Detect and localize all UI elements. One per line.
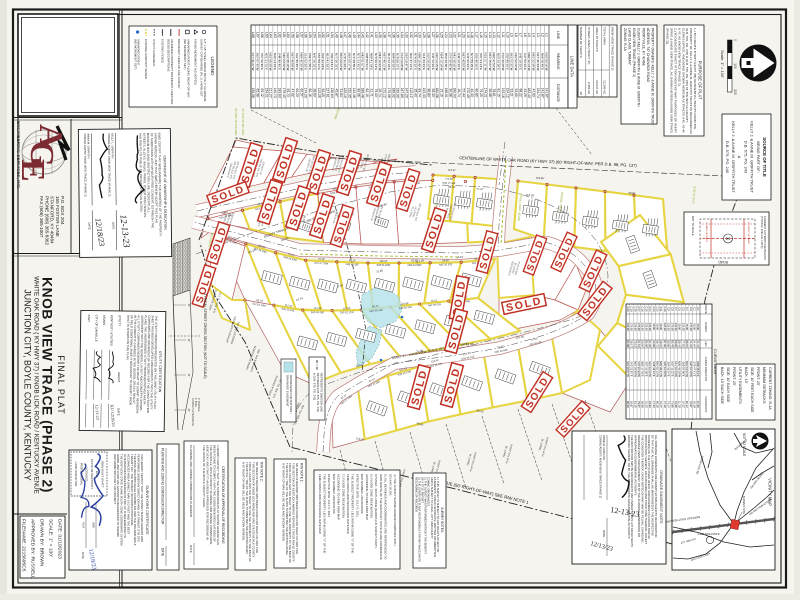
svg-text:N54°13’18”W: N54°13’18”W [440,52,444,70]
svg-text:S51°58’31”E: S51°58’31”E [317,53,321,70]
svg-text:L33: L33 [404,32,408,38]
svg-text:152.35’: 152.35’ [348,88,352,99]
svg-text:SIDE: 10' FEET EACH SIDE: SIDE: 10' FEET EACH SIDE [750,367,754,413]
svg-text:N67°45’13”W: N67°45’13”W [383,52,387,70]
svg-text:MAP NUMBER: 21021C0170C: MAP NUMBER: 21021C0170C [332,474,336,514]
svg-text:60.57’: 60.57’ [299,89,303,98]
svg-text:L38: L38 [383,32,387,38]
svg-text:93.21’: 93.21’ [510,89,514,98]
svg-text:L35: L35 [396,32,400,38]
svg-text:175.56’: 175.56’ [387,88,391,99]
svg-text:CLIENT: KELLY J. GRIFFITH & A: CLIENT: KELLY J. GRIFFITH & ANNE M. GRIF… [637,28,641,107]
svg-text:1.) TO CREATE THIRTY EIGHT (38: 1.) TO CREATE THIRTY EIGHT (38) RESIDENT… [693,28,697,129]
svg-text:THE CONDITION THEREOF, OR AS N: THE CONDITION THEREOF, OR AS NOTED ON AN… [640,435,644,543]
svg-text:PLANNING AND ZONING COMMISSION: PLANNING AND ZONING COMMISSION CHAIRMAN [189,445,193,517]
svg-text:S69°59’17”W: S69°59’17”W [348,53,352,71]
svg-text:L7: L7 [518,33,522,37]
svg-text:183.60’: 183.60’ [277,88,281,99]
svg-text:DATE: DATE [116,408,120,416]
svg-text:N67°49’58”W: N67°49’58”W [291,52,295,70]
svg-text:35.43’: 35.43’ [413,89,417,98]
svg-text:L59: L59 [291,32,295,38]
svg-text:N67°42’44”W: N67°42’44”W [536,52,540,70]
svg-text:KENTUCKY UTILITIES: KENTUCKY UTILITIES [109,315,113,346]
svg-text:L52: L52 [321,32,325,38]
svg-text:DATE: DATE [111,222,115,229]
svg-text:JOHN HUNT WYATT: JOHN HUNT WYATT [101,460,105,487]
svg-text:N30°14’23”E: N30°14’23”E [273,53,277,70]
svg-text:P.O. BOX 204: P.O. BOX 204 [60,196,65,225]
svg-text:N77°55’25”E: N77°55’25”E [470,53,474,70]
svg-text:L14: L14 [488,32,492,38]
svg-text:KNOB VIEW TRACE (PHASE 2): KNOB VIEW TRACE (PHASE 2) [40,277,55,493]
svg-text:S17°41’27”W: S17°41’27”W [251,53,255,71]
svg-text:KNOB VIEW TRACE (PHASE 2): KNOB VIEW TRACE (PHASE 2) [610,27,614,70]
svg-text:N66°30’49”E: N66°30’49”E [540,53,544,70]
svg-text:S16°52’28”E: S16°52’28”E [304,53,308,70]
svg-text:0: 0 [733,39,737,41]
svg-text:ATMOS: ATMOS [102,315,106,326]
svg-text:SIDE: 10' EACH SIDE: SIDE: 10' EACH SIDE [726,367,730,403]
svg-text:R/W NOTE 2:: R/W NOTE 2: [260,462,264,482]
svg-text:N26°37’53”W: N26°37’53”W [492,52,496,70]
svg-text:129.19’: 129.19’ [343,88,347,99]
svg-text:N51°15’27”W: N51°15’27”W [488,52,492,70]
svg-text:136.60’: 136.60’ [330,88,334,99]
svg-text:KENTUCKY AND THAT IT HAS BEEN: KENTUCKY AND THAT IT HAS BEEN APPROVED F… [206,445,210,540]
svg-text:PROPERTY OF KELLY J. & ANNE M.: PROPERTY OF KELLY J. & ANNE M. GRIFFITH … [689,28,693,134]
svg-text:L39: L39 [378,32,382,38]
svg-text:SURVEY NOTES:: SURVEY NOTES: [440,507,444,533]
svg-text:L46: L46 [348,32,352,38]
svg-text:S33°22’29”E: S33°22’29”E [466,53,470,70]
svg-text:78.61’: 78.61’ [492,89,496,98]
svg-text:ACCURACIES AND A DIRECT MAX 0.: ACCURACIES AND A DIRECT MAX 0.02 FEET AN… [126,454,130,534]
svg-text:L43: L43 [361,32,365,38]
svg-text:96.80’: 96.80’ [426,89,430,98]
svg-text:15.19’: 15.19’ [440,89,444,98]
svg-text:&: & [737,156,742,159]
svg-text:2.) TO DEDICATE TRACT 47 FOR R: 2.) TO DEDICATE TRACT 47 FOR RIGHT-OF-WA… [674,28,678,133]
svg-text:CLERKS OFFICE, AND BEING SHOWN: CLERKS OFFICE, AND BEING SHOWN HEREON AS… [681,28,685,133]
svg-text:& 47; AS KNOB VIEW TRACE (PHAS: & 47; AS KNOB VIEW TRACE (PHASE 2). [677,28,681,87]
svg-text:172.12’: 172.12’ [383,88,387,99]
svg-text:S53°45’36”E: S53°45’36”E [475,53,479,70]
svg-text:127.61’: 127.61’ [326,88,330,99]
svg-text:198.91’: 198.91’ [444,88,448,99]
svg-text:S42°12’10”E: S42°12’10”E [457,53,461,70]
svg-text:R/W NOTE 1:: R/W NOTE 1: [300,463,304,483]
svg-text:L31: L31 [413,32,417,38]
svg-text:201 KAR 18:150.: 201 KAR 18:150. [388,474,392,496]
svg-text:L27: L27 [431,32,435,38]
svg-text:143.18’: 143.18’ [501,88,505,99]
svg-text:N13°12’18”E: N13°12’18”E [387,53,391,70]
svg-text:S73°19’28”W: S73°19’28”W [400,53,404,71]
svg-text:L32: L32 [409,32,413,38]
svg-text:55.70’: 55.70’ [286,89,290,98]
svg-text:REPRESENTS DIVISION LINE: REPRESENTS DIVISION LINE [320,373,324,412]
svg-text:S10°26’33”W: S10°26’33”W [426,53,430,71]
svg-text:L2: L2 [540,33,544,37]
svg-text:LAND CLASS: "URBAN": LAND CLASS: "URBAN" [628,28,632,66]
svg-text:STATE OF KENTUCKY: STATE OF KENTUCKY [90,459,94,489]
svg-text:LAND SURVEYOR: LAND SURVEYOR [74,462,78,487]
svg-text:134.74’: 134.74’ [536,88,540,99]
svg-text:S46°29’26”W: S46°29’26”W [282,53,286,71]
svg-text:FRONT: 25': FRONT: 25' [732,367,736,386]
svg-text:L37: L37 [387,32,391,38]
svg-text:S16°45’18”W: S16°45’18”W [286,53,290,71]
svg-text:4.) THE SURVEY SHOWN HEREON CO: 4.) THE SURVEY SHOWN HEREON COMPLIES WIT… [393,474,397,545]
svg-text:43.29’: 43.29’ [523,89,527,98]
svg-text:N47°26’33”E: N47°26’33”E [312,53,316,70]
svg-text:EFFECTIVE DATE: JULY 6, 2011: EFFECTIVE DATE: JULY 6, 2011 [327,474,331,517]
svg-text:L9: L9 [510,33,514,37]
svg-text:FEMA FIRM FLOOD INSURANCE RATE: FEMA FIRM FLOOD INSURANCE RATE MAP. [346,474,350,534]
svg-text:121.27’: 121.27’ [269,88,273,99]
svg-text:ENGINEERING SERVICES, INC.: ENGINEERING SERVICES, INC. [16,121,21,189]
svg-text:L24: L24 [444,32,448,38]
svg-text:12.299 AC.: 12.299 AC. [603,80,607,95]
svg-text:L12: L12 [497,32,501,38]
svg-text:140.73’: 140.73’ [273,88,277,99]
svg-text:PERRYVILLE, KY 40468: PERRYVILLE, KY 40468 [641,28,645,66]
svg-text:(NO MONUMENT SET): (NO MONUMENT SET) [183,39,187,69]
svg-text:64.20’: 64.20’ [295,89,299,98]
svg-text:S56°24’41”E: S56°24’41”E [330,53,334,70]
svg-text:BACK: 10': BACK: 10' [744,367,748,384]
svg-text:S30°52’24”W: S30°52’24”W [514,53,518,71]
svg-text:L45: L45 [352,32,356,38]
svg-text:N21°21’31”E: N21°21’31”E [264,53,268,70]
svg-text:STANFORD, KY 40484: STANFORD, KY 40484 [50,196,55,244]
svg-text:100: 100 [733,63,737,69]
svg-text:L34: L34 [400,32,404,38]
svg-text:159.56’: 159.56’ [251,88,255,99]
svg-text:ZONING AGENT/ KNOB VIEW TRACE: ZONING AGENT/ KNOB VIEW TRACE (PHASE 2) [599,435,603,498]
svg-text:S76°49’28”W: S76°49’28”W [501,53,505,71]
svg-text:L51: L51 [326,32,330,38]
svg-text:L40: L40 [374,32,378,38]
svg-text:L42: L42 [365,32,369,38]
svg-text:ACCORDING TO FEMA FIRM MAP: ACCORDING TO FEMA FIRM MAP [337,474,341,520]
svg-text:N42°51’57”W: N42°51’57”W [361,52,365,70]
svg-text:S14°29’23”E: S14°29’23”E [422,53,426,70]
svg-text:FOUND MONUMENT (AS NOTED): FOUND MONUMENT (AS NOTED) [194,39,198,85]
svg-text:63.12’: 63.12’ [260,89,264,98]
svg-text:90.98’: 90.98’ [448,89,452,98]
svg-text:L66: L66 [260,32,264,38]
svg-text:DRIVE & KNOB VIEW TRACE, AS SH: DRIVE & KNOB VIEW TRACE, AS SHOWN HEREON… [670,28,674,133]
svg-text:THE SUBJECT PROPERTY LIES WITH: THE SUBJECT PROPERTY LIES WITHIN ZONE "X… [351,474,355,553]
svg-text:FEMA FIRM FLOOD INSURANCE RATE: FEMA FIRM FLOOD INSURANCE RATE MAP. [318,474,322,534]
svg-text:79.40’: 79.40’ [374,89,378,98]
svg-text:L36: L36 [391,32,395,38]
svg-text:L20: L20 [461,32,465,38]
svg-text:THE OFFICE OF THE BOYLE COUNTY: THE OFFICE OF THE BOYLE COUNTY CLERK. [202,445,206,508]
svg-text:NUMBER OF TRACTS: NUMBER OF TRACTS [579,27,583,58]
svg-text:29.74’: 29.74’ [378,89,382,98]
svg-text:141.67’: 141.67’ [545,88,549,99]
svg-text:S63°32’34”E: S63°32’34”E [321,53,325,70]
svg-text:S61°45’45”E: S61°45’45”E [295,53,299,70]
svg-text:12': 12' [187,303,190,307]
svg-text:DISTANCE: DISTANCE [556,84,560,103]
svg-text:WHAT IS SHOWN ON THIS PLAN.: WHAT IS SHOWN ON THIS PLAN. [126,315,131,361]
svg-text:KELLY J. & ANNE M. GRIFFITH TR: KELLY J. & ANNE M. GRIFFITH TRUST [750,121,755,193]
svg-text:L68: L68 [251,32,255,38]
svg-text:5.) ALL BEARINGS AND COORDINAT: 5.) ALL BEARINGS AND COORDINATES ARE REF… [384,474,388,560]
svg-text:N74°59’10”E: N74°59’10”E [413,53,417,70]
svg-text:BETWEEN (D.B. 575, PG. 240): BETWEEN (D.B. 575, PG. 240) [316,373,320,412]
svg-text:(ORTHOMETRIC) FOR THIS PROJECT: (ORTHOMETRIC) FOR THIS PROJECT. [113,454,117,505]
svg-text:83.74’: 83.74’ [418,89,422,98]
svg-text:ZONING: R-1A: ZONING: R-1A [623,28,627,52]
svg-text:REPRESENTS DETENTION /: REPRESENTS DETENTION / [289,375,293,414]
svg-text:L8: L8 [514,33,518,37]
svg-text:CERTIFICATE OF OWNERSHIP & DED: CERTIFICATE OF OWNERSHIP & DEDICATION [163,155,168,230]
svg-text:165 FOSTER LANE: 165 FOSTER LANE [55,196,60,237]
svg-text:S37°52’29”E: S37°52’29”E [523,53,527,70]
svg-text:L17: L17 [475,32,479,38]
svg-text:THE DANVILLE, BOYLE COUNTY PLA: THE DANVILLE, BOYLE COUNTY PLANNING AND … [209,445,213,545]
svg-text:ACCORDING TO FEMA FIRM MAP: ACCORDING TO FEMA FIRM MAP [365,474,369,520]
svg-text:53.65’: 53.65’ [514,89,518,98]
svg-text:MAP NUMBER: 21021C0150C: MAP NUMBER: 21021C0150C [360,474,364,514]
svg-text:DEEDS/DESCRIPTIONS: DEEDS/DESCRIPTIONS [167,39,171,72]
svg-text:N23°15’26”E: N23°15’26”E [497,53,501,70]
svg-text:N84°55’53”E: N84°55’53”E [391,53,395,70]
svg-text:BEARING: BEARING [556,53,560,69]
svg-text:L65: L65 [264,32,268,38]
svg-text:TYPICAL STREET CROSS SECTION (: TYPICAL STREET CROSS SECTION (NOT TO SCA… [203,293,207,378]
svg-text:80.89’: 80.89’ [475,89,479,98]
svg-text:A 40' RIGHT-OF-WAY WILL BE HEL: A 40' RIGHT-OF-WAY WILL BE HELD AND SHOW… [241,462,245,541]
svg-text:N41°38’16”W: N41°38’16”W [453,52,457,70]
svg-text:82.16’: 82.16’ [308,89,312,98]
svg-text:I HEREBY CERTIFY THAT THE SUBD: I HEREBY CERTIFY THAT THE SUBDIVISION PL… [216,445,220,545]
svg-text:CITY OF DANVILLE: CITY OF DANVILLE [94,315,98,342]
svg-text:THE SUBJECT PROPERTY LIES WITH: THE SUBJECT PROPERTY LIES WITHIN ZONE "X… [323,474,327,553]
svg-text:N81°22’38”W: N81°22’38”W [532,52,536,70]
svg-text:L18: L18 [470,32,474,38]
svg-text:FRONT: 25': FRONT: 25' [756,367,760,386]
svg-text:S87°24’14”E: S87°24’14”E [479,53,483,70]
svg-text:L63: L63 [273,32,277,38]
svg-text:189.48’: 189.48’ [361,88,365,99]
svg-text:LINE DATA: LINE DATA [570,56,575,77]
svg-text:L48: L48 [339,32,343,38]
svg-text:DATE: DATE [87,222,91,229]
svg-text:STREET AREA (TRACT 47): STREET AREA (TRACT 47) [587,27,591,64]
svg-text:ADDRESS: 747 CHADWICK ROAD: ADDRESS: 747 CHADWICK ROAD [646,28,650,83]
svg-text:KNOB VIEW TRACE (PHASE 2): KNOB VIEW TRACE (PHASE 2) [632,28,636,77]
svg-text:L25: L25 [440,32,444,38]
svg-text:L5: L5 [527,33,531,37]
svg-text:L50: L50 [330,32,334,38]
svg-text:N43°10’39”W: N43°10’39”W [378,52,382,70]
svg-text:N66°30’14”W: N66°30’14”W [527,52,531,70]
svg-text:PROPERTY OWNERS: KELLY J. &: PROPERTY OWNERS: KELLY J. & ANNE M. GRIF… [651,28,655,125]
svg-text:L3: L3 [536,33,540,37]
svg-text:154.21’: 154.21’ [264,88,268,99]
svg-text:(PHASE 2)).: (PHASE 2)). [666,28,670,45]
svg-text:31.84’: 31.84’ [339,89,343,98]
svg-text:AGENT: AGENT [117,372,121,383]
svg-text:S39°15’47”W: S39°15’47”W [404,53,408,71]
svg-text:EXISTING SANITARY SEWER: EXISTING SANITARY SEWER [144,39,148,79]
svg-text:62.19’: 62.19’ [365,89,369,98]
svg-text:45.87’: 45.87’ [334,89,338,98]
svg-text:200: 200 [733,89,737,95]
svg-text:L64: L64 [269,32,273,38]
svg-text:L57: L57 [299,32,303,38]
svg-text:12': 12' [187,408,190,412]
svg-text:ZONING AGENT/ KNOB VIEW TRACE: ZONING AGENT/ KNOB VIEW TRACE (PHASE 2) [83,133,88,196]
svg-text:D.B. 575, PG. 240: D.B. 575, PG. 240 [725,141,730,174]
svg-text:79.25’: 79.25’ [479,89,483,98]
svg-text:N75°50’37”E: N75°50’37”E [396,53,400,70]
svg-text:180.93’: 180.93’ [453,88,457,99]
svg-text:SOURCE OF TITLE: SOURCE OF TITLE [762,137,767,177]
svg-text:L26: L26 [435,32,439,38]
svg-text:L41: L41 [369,32,373,38]
svg-text:EXISTING FENCE: EXISTING FENCE [160,39,164,63]
svg-text:N19°27’11”W: N19°27’11”W [483,53,487,71]
svg-text:S48°40’45”E: S48°40’45”E [277,53,281,70]
svg-text:40.30’: 40.30’ [470,89,474,98]
svg-text:L55: L55 [308,32,312,38]
svg-text:WHITE OAK ROAD ( KY HWY 37) /: WHITE OAK ROAD ( KY HWY 37) / KNOB LICK … [33,276,40,494]
svg-text:2.252 AC.: 2.252 AC. [587,82,591,95]
svg-text:L11: L11 [501,32,505,37]
svg-text:65.58’: 65.58’ [255,89,259,98]
svg-text:S63°22’32”W: S63°22’32”W [510,53,514,71]
svg-text:S70°11’28”E: S70°11’28”E [343,53,347,70]
svg-text:16.74’: 16.74’ [457,89,461,98]
svg-text:N70°26’14”E: N70°26’14”E [374,53,378,70]
svg-text:JUNCTION CITY: JUNCTION CITY [697,532,720,536]
svg-text:L67: L67 [255,32,259,38]
svg-text:SURVEYORS CERTIFICATE: SURVEYORS CERTIFICATE [145,485,149,535]
svg-text:SURVEY SITE: SURVEY SITE [742,496,746,515]
svg-text:S30°13’15”W: S30°13’15”W [435,53,439,71]
svg-text:183.40’: 183.40’ [527,88,531,99]
svg-text:L61: L61 [282,32,286,38]
svg-text:LINE: LINE [556,31,560,40]
svg-text:ROAD: ROAD [718,260,728,264]
svg-text:A 40' RIGHT-OF-WAY WILL BE HEL: A 40' RIGHT-OF-WAY WILL BE HELD AND SHOW… [281,463,285,542]
svg-text:JUNCTION CITY, BOYLE COUNTY, K: JUNCTION CITY, BOYLE COUNTY, KENTUCKY [23,289,33,480]
svg-text:DATE: DATE [602,530,606,537]
svg-text:L16: L16 [479,32,483,38]
svg-text:SURVEY CAP BEARING (P.L.S. #40: SURVEY CAP BEARING (P.L.S. #4049) SET [200,39,204,97]
svg-text:L49: L49 [334,32,338,38]
svg-text:47.63’: 47.63’ [532,89,536,98]
svg-text:L62: L62 [277,32,281,38]
svg-text:N77°26’33”E: N77°26’33”E [334,53,338,70]
svg-text:N15°59’16”W: N15°59’16”W [545,52,549,70]
svg-text:L22: L22 [453,32,457,38]
svg-text:L15: L15 [483,32,487,38]
svg-text:MINIMUM SETBACKS:: MINIMUM SETBACKS: [762,367,766,404]
svg-text:197.89’: 197.89’ [400,88,404,99]
svg-text:BEEN FOUND TO COMPLY WITH THE: BEEN FOUND TO COMPLY WITH THE SUBDIVISIO… [213,445,217,542]
svg-text:LEGEND: LEGEND [210,57,215,77]
svg-text:SYSTEM - SOUTH ZONE (NAD83) (U: SYSTEM - SOUTH ZONE (NAD83) (US SURVEY F… [374,474,378,549]
svg-text:199.99’: 199.99’ [396,88,400,99]
svg-text:GRID NORTH OF THE KENTUCKY STA: GRID NORTH OF THE KENTUCKY STATE PLANE C… [379,474,383,560]
svg-text:& (D.B. 575, PG. 243): & (D.B. 575, PG. 243) [312,373,316,400]
svg-text:103.33’: 103.33’ [422,88,426,99]
svg-text:N72°28’55”E: N72°28’55”E [352,53,356,70]
svg-text:L56: L56 [304,32,308,38]
svg-text:N65°42’30”W: N65°42’30”W [299,52,303,70]
svg-text:68.22’: 68.22’ [518,89,522,98]
svg-text:N61°47’12”E: N61°47’12”E [409,53,413,70]
svg-text:189.92’: 189.92’ [391,88,395,99]
svg-text:112.12’: 112.12’ [409,88,413,99]
svg-text:CERTIFICATION OF APPROVAL OF R: CERTIFICATION OF APPROVAL OF RECORDING [221,466,225,544]
svg-text:L10: L10 [505,32,509,38]
svg-text:(D.B. 575, PG. 243) & (D.B. 57: (D.B. 575, PG. 243) & (D.B. 575, PG. 240… [685,28,689,123]
svg-text:KELLY J. & ANNE M. GRIFFITH TR: KELLY J. & ANNE M. GRIFFITH TRUST [731,121,736,193]
svg-text:144.46’: 144.46’ [352,88,356,99]
svg-text:L47: L47 [343,32,347,38]
svg-text:L53: L53 [317,32,321,38]
svg-text:12': 12' [187,373,190,377]
svg-text:57.44’: 57.44’ [461,89,465,98]
svg-text:L4: L4 [532,33,536,37]
svg-text:31.71’: 31.71’ [369,89,373,98]
svg-text:81.15’: 81.15’ [497,89,501,98]
svg-text:S57°26’46”E: S57°26’46”E [260,53,264,70]
svg-text:7.) FLOOD ZONE DESIGNATION:: 7.) FLOOD ZONE DESIGNATION: [341,474,345,518]
svg-text:6.) FLOOD ZONE DESIGNATION:: 6.) FLOOD ZONE DESIGNATION: [370,474,374,518]
svg-text:174.29’: 174.29’ [304,88,308,99]
svg-text:S47°12’39”E: S47°12’39”E [431,53,435,70]
svg-text:S53°45’39”E: S53°45’39”E [505,53,509,70]
svg-text:L58: L58 [295,32,299,38]
svg-text:UTILITY EASEMENT: UTILITY EASEMENT [152,39,156,67]
svg-text:FINAL PLAT: FINAL PLAT [56,355,66,415]
svg-text:CURRENT ZONING: R-1A: CURRENT ZONING: R-1A [768,367,772,410]
svg-text:S79°35’42”W: S79°35’42”W [448,53,452,71]
svg-text:92.25’: 92.25’ [321,89,325,98]
svg-text:N58°15’40”W: N58°15’40”W [418,52,422,70]
svg-text:AREA IN TRACTS: AREA IN TRACTS [595,27,599,52]
svg-text:N10°41’53”E: N10°41’53”E [326,53,330,70]
svg-text:S59°23’23”W: S59°23’23”W [339,53,343,71]
svg-text:BACK: 10' EACH SIDE: BACK: 10' EACH SIDE [720,367,724,404]
svg-text:124.12’: 124.12’ [505,88,509,99]
svg-text:L1: L1 [545,33,549,37]
svg-text:L23: L23 [448,32,452,38]
svg-text:L21: L21 [457,32,461,38]
svg-text:ADJOINING PROPERTY BOUNDARY LI: ADJOINING PROPERTY BOUNDARY LINES PER [170,39,174,104]
svg-text:DATE: DATE [161,548,165,556]
svg-text:BOUNDARY LINES OF AGE SURVEY: BOUNDARY LINES OF AGE SURVEY [177,39,181,89]
svg-text:59.30’: 59.30’ [431,89,435,98]
svg-text:L44: L44 [356,32,360,38]
svg-text:S88°50’51”E: S88°50’51”E [365,53,369,70]
svg-text:BEING PART OF:: BEING PART OF: [756,141,761,173]
svg-text:N68°41’34”E: N68°41’34”E [369,53,373,70]
svg-text:UTILITY: UTILITY [118,315,122,326]
svg-text:147.29’: 147.29’ [404,88,408,99]
svg-text:L54: L54 [312,32,316,38]
